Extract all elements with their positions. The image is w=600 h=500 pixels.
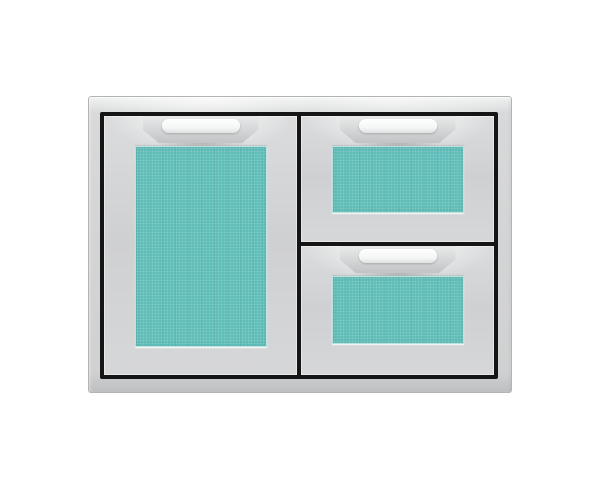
handle-grip: [359, 249, 437, 263]
drawer-top-turquoise-panel: [332, 146, 464, 213]
handle-plate: [340, 246, 456, 273]
door-turquoise-panel: [135, 146, 267, 347]
handle-grip: [162, 119, 240, 133]
product-photo: [0, 0, 600, 500]
storage-combo-unit: [88, 96, 512, 393]
handle-plate: [340, 116, 456, 143]
drawer-bottom: [301, 246, 494, 375]
storage-door: [104, 116, 297, 375]
handle-plate: [143, 116, 259, 143]
unit-black-frame: [100, 112, 498, 379]
drawer-bottom-turquoise-panel: [332, 276, 464, 344]
handle-grip: [359, 119, 437, 133]
drawer-top: [301, 116, 494, 242]
